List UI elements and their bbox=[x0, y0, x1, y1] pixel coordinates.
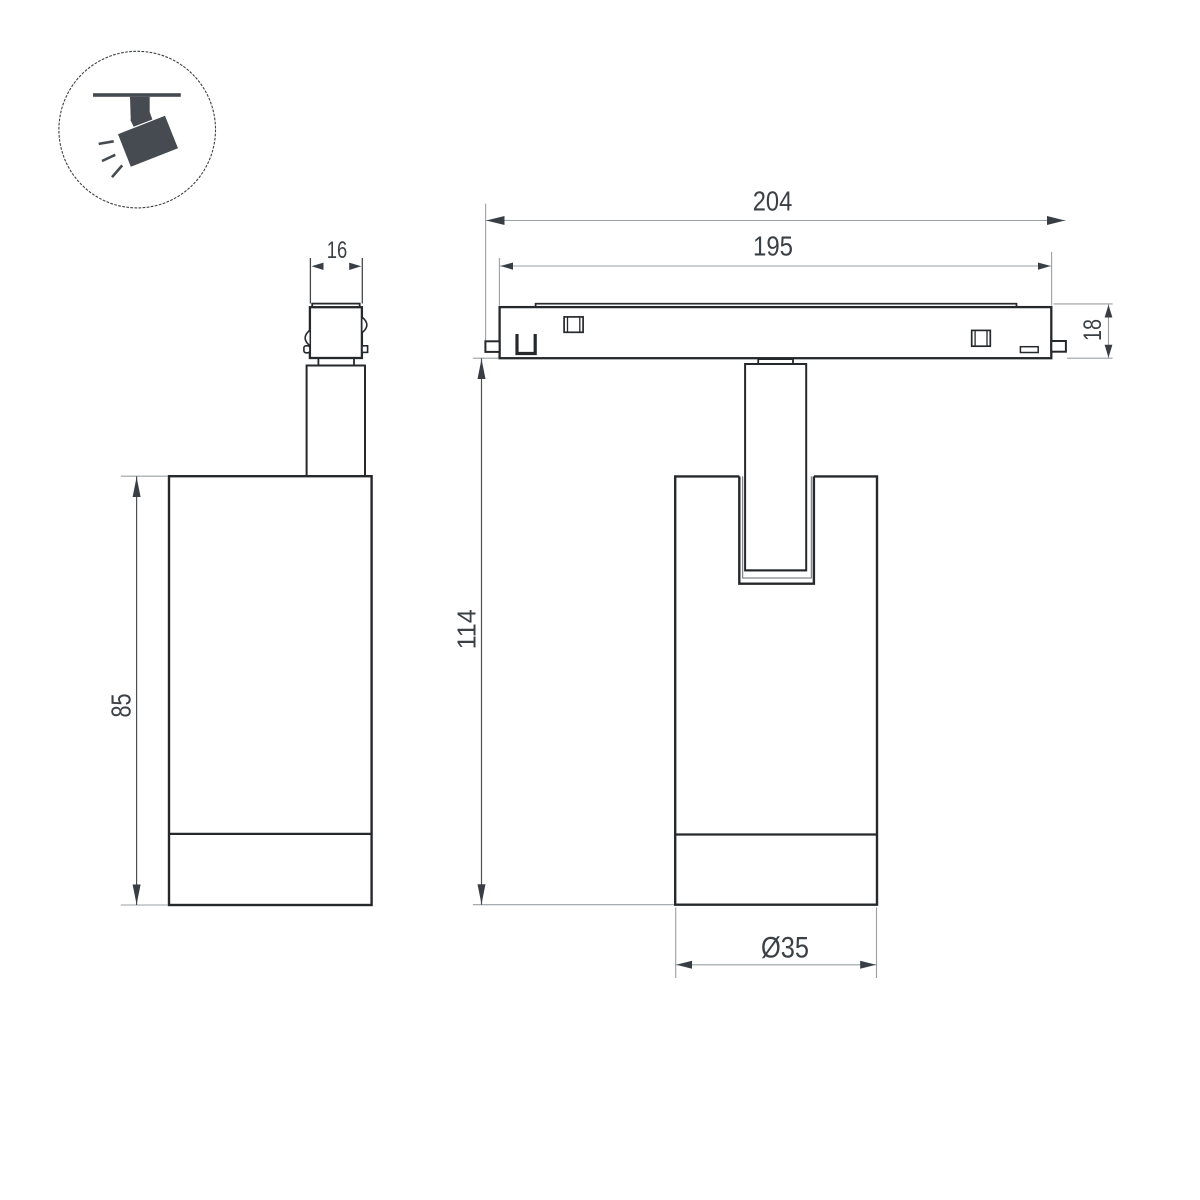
svg-text:204: 204 bbox=[753, 185, 793, 216]
svg-text:114: 114 bbox=[451, 609, 481, 649]
svg-text:85: 85 bbox=[106, 694, 137, 718]
svg-text:195: 195 bbox=[753, 231, 793, 262]
svg-text:16: 16 bbox=[327, 237, 348, 264]
svg-text:18: 18 bbox=[1079, 319, 1107, 341]
svg-text:Ø35: Ø35 bbox=[761, 932, 809, 965]
